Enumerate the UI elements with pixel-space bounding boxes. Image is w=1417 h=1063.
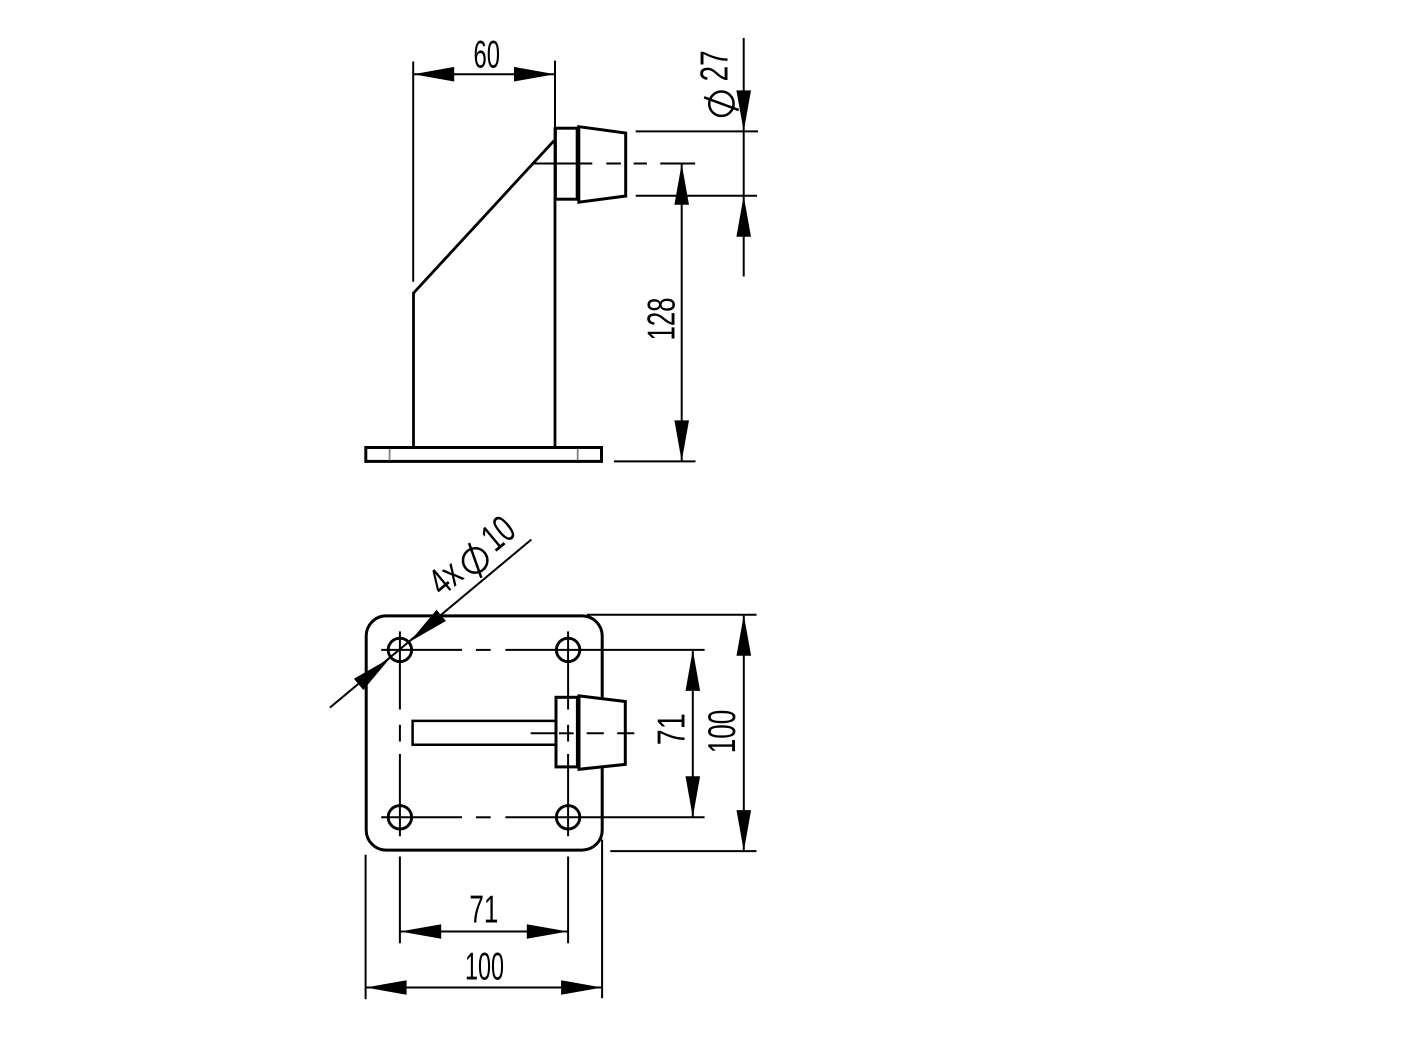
svg-text:128: 128 — [641, 298, 684, 341]
svg-text:100: 100 — [701, 710, 744, 754]
svg-text:60: 60 — [473, 33, 500, 76]
svg-text:71: 71 — [469, 888, 498, 931]
svg-text:100: 100 — [465, 945, 504, 988]
svg-text:71: 71 — [650, 713, 693, 745]
svg-text:27: 27 — [693, 50, 736, 81]
